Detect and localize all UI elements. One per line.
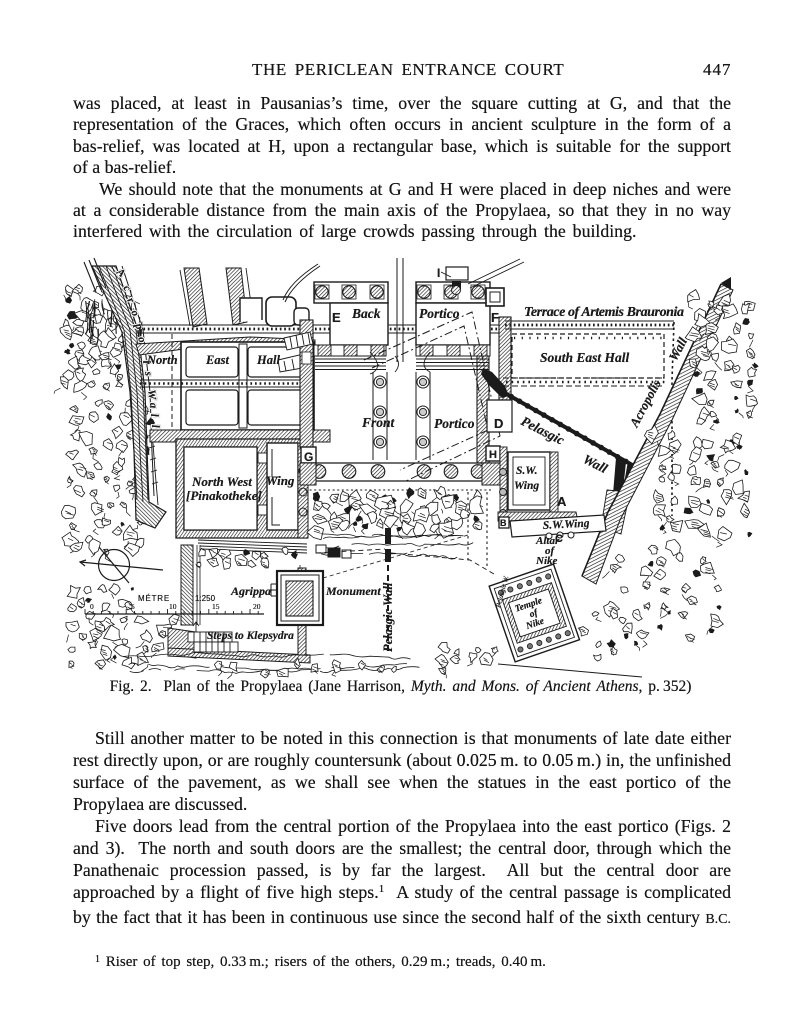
- svg-text:S.W.: S.W.: [516, 465, 538, 477]
- svg-text:South East Hall: South East Hall: [540, 350, 630, 365]
- svg-text:MÉTRE: MÉTRE: [138, 594, 170, 603]
- svg-text:A: A: [557, 494, 567, 509]
- svg-text:Pelasgic: Pelasgic: [519, 413, 567, 447]
- svg-text:Steps to Klepsydra: Steps to Klepsydra: [207, 630, 294, 642]
- svg-text:1:250: 1:250: [195, 594, 216, 603]
- svg-text:15: 15: [212, 602, 220, 611]
- svg-text:Terrace of Artemis Brauronia: Terrace of Artemis Brauronia: [524, 305, 684, 320]
- svg-text:10: 10: [169, 602, 177, 611]
- svg-text:I: I: [437, 266, 440, 280]
- svg-text:Wing: Wing: [266, 473, 295, 488]
- svg-text:D: D: [494, 416, 503, 431]
- svg-text:Front: Front: [361, 415, 396, 430]
- svg-text:Monument: Monument: [325, 584, 381, 598]
- svg-text:a: a: [147, 402, 159, 409]
- svg-text:5: 5: [131, 602, 135, 611]
- svg-text:S.W.Wing: S.W.Wing: [543, 518, 590, 532]
- svg-text:Wall: Wall: [581, 451, 611, 476]
- svg-text:Portico: Portico: [434, 416, 475, 431]
- svg-text:Agrippa: Agrippa: [230, 584, 271, 598]
- svg-text:North West: North West: [191, 474, 252, 489]
- svg-text:0: 0: [90, 602, 94, 611]
- svg-text:[Pinakotheke]: [Pinakotheke]: [186, 488, 262, 503]
- svg-text:Hall: Hall: [256, 353, 280, 367]
- svg-text:s: s: [142, 370, 155, 377]
- svg-text:G: G: [304, 450, 313, 464]
- svg-text:East: East: [205, 353, 229, 367]
- svg-text:Portico: Portico: [419, 306, 460, 321]
- svg-text:F: F: [491, 310, 499, 325]
- svg-text:North: North: [146, 353, 178, 367]
- svg-text:20: 20: [253, 602, 261, 611]
- svg-text:H: H: [489, 449, 497, 461]
- svg-text:E: E: [332, 310, 341, 325]
- svg-text:l: l: [148, 413, 160, 418]
- svg-text:W: W: [145, 389, 158, 401]
- svg-text:Back: Back: [351, 306, 381, 321]
- svg-text:Wing: Wing: [514, 480, 539, 492]
- svg-text:Pelasgic Wall: Pelasgic Wall: [381, 582, 395, 652]
- svg-text:B: B: [500, 518, 507, 528]
